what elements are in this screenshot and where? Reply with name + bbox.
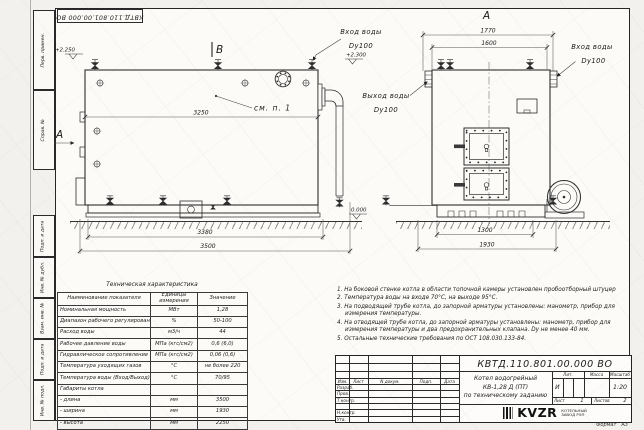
tb-sheet-label: Лист <box>554 398 572 403</box>
spec-col-header: Значение <box>198 292 248 305</box>
spec-row: Номинальная мощностьМВт1,28 <box>58 305 248 316</box>
tb-title-line: КВ-1,28 Д (ПТ) <box>461 385 550 392</box>
spec-name: Гидравлическое сопротивление котла <box>58 350 151 361</box>
spec-row: Рабочее давление водыМПа (кгс/см2)0,6 (6… <box>58 339 248 350</box>
spec-name: - высота <box>58 418 151 429</box>
tb-col-data: Дата <box>440 379 459 384</box>
spec-name: Габариты котла <box>58 384 151 395</box>
spec-value: 44 <box>198 328 248 339</box>
margin-stamp-label: Подп. и дата <box>42 344 47 375</box>
margin-stamp-label: Инв. № подл. <box>42 385 47 417</box>
tb-doc-number: КВТД.110.801.00.000 ВО <box>459 359 631 371</box>
tb-row-utv: Утв. <box>337 417 367 422</box>
margin-stamp-vzam-inv: Взам. инв. № <box>33 298 55 339</box>
margin-stamp-perv-primen: Перв. примен. <box>33 10 55 90</box>
note-item: 4. На отводящей трубе котла, до запорной… <box>337 320 629 335</box>
paper-edge-line <box>30 0 31 430</box>
corner-stamp: КВТД.110.801.00.000 ВО <box>57 9 143 23</box>
spec-table-title: Техническая характеристика <box>57 283 247 289</box>
spec-value: не более 220 <box>198 361 248 372</box>
tb-sheets-label: Листов <box>594 398 616 403</box>
tb-sheet-value: 1 <box>576 398 588 405</box>
tb-row-razrab: Разраб. <box>337 385 367 390</box>
titleblock-line <box>552 378 631 379</box>
spec-col-header: Единицы измерения <box>151 292 198 305</box>
spec-unit: МПа (кгс/см2) <box>151 350 198 361</box>
technical-notes: 1. На боковой стенке котла в области топ… <box>337 287 629 345</box>
spec-row: Гидравлическое сопротивление котлаМПа (к… <box>58 350 248 361</box>
tb-row-nkontr: Н.контр. <box>337 410 367 415</box>
ground-hatch-side <box>70 221 362 229</box>
format-value: А3 <box>621 423 628 428</box>
spec-col-header: Наименование показателя <box>58 292 151 305</box>
margin-stamp-label: Подп. и дата <box>42 220 47 251</box>
drawing-sheet: Перв. примен. Справ. № Подп. и дата Инв.… <box>0 0 644 430</box>
titleblock-line <box>563 378 564 397</box>
tb-col-list: Лист <box>349 379 368 384</box>
spec-table: Наименование показателя Единицы измерени… <box>57 292 248 430</box>
ground-hatch-front <box>396 221 610 229</box>
spec-unit: °С <box>151 361 198 372</box>
titleblock-line <box>412 356 413 422</box>
spec-value: 70/95 <box>198 373 248 384</box>
kvzr-logo-icon <box>503 407 513 419</box>
tb-row-tkontr: Т.контр. <box>337 398 367 403</box>
spec-value: 1930 <box>198 407 248 418</box>
tb-scale-value: 1:20 <box>609 384 631 392</box>
tb-mass-label: Масса <box>584 372 609 377</box>
tb-lit-label: Лит. <box>552 372 584 377</box>
tb-product-title: Котел водогрейный КВ-1,28 Д (ПТ) по техн… <box>461 373 550 403</box>
margin-stamp-podp-data-1: Подп. и дата <box>33 215 55 257</box>
margin-stamp-label: Справ. № <box>42 119 47 141</box>
spec-unit <box>151 384 198 395</box>
spec-name: Рабочее давление воды <box>58 339 151 350</box>
kvzr-company-line: ЗАВОД РЭП <box>561 413 587 418</box>
spec-row: Диапазон рабочего регулирования%50-100 <box>58 316 248 327</box>
spec-value: 0,6 (6,0) <box>198 339 248 350</box>
spec-unit: % <box>151 316 198 327</box>
note-item: 3. На подводящей трубе котла, до запорно… <box>337 304 629 319</box>
spec-row: Расход водым3/ч44 <box>58 328 248 339</box>
tb-scale-label: Масштаб <box>609 372 631 377</box>
title-block: Изм. Лист N докум. Подп. Дата Разраб. Пр… <box>335 355 632 423</box>
titleblock-line <box>573 378 574 397</box>
spec-name: Расход воды <box>58 328 151 339</box>
tb-row-prov: Пров. <box>337 391 367 396</box>
spec-row: - ширинамм1930 <box>58 407 248 418</box>
spec-unit: мм <box>151 395 198 406</box>
titleblock-line <box>336 371 459 372</box>
spec-unit: °С <box>151 373 198 384</box>
margin-stamp-inv-dubl: Инв. № дубл. <box>33 257 55 298</box>
format-label: Формат А3 <box>548 423 628 428</box>
spec-value: 0,06 (0,6) <box>198 350 248 361</box>
tb-lit-value: И <box>552 384 563 392</box>
format-word: Формат <box>596 423 616 428</box>
spec-unit: мм <box>151 418 198 429</box>
spec-row: Температура воды (Вход/Выход)°С70/95 <box>58 373 248 384</box>
margin-stamp-label: Инв. № дубл. <box>42 262 47 293</box>
spec-row: - длинамм3500 <box>58 395 248 406</box>
spec-value: 1,28 <box>198 305 248 316</box>
note-item: 2. Температура воды на входе 70°С, на вы… <box>337 295 629 303</box>
tb-col-izm: Изм. <box>336 379 349 384</box>
note-item: 1. На боковой стенке котла в области топ… <box>337 287 629 295</box>
titleblock-line <box>368 356 369 422</box>
tb-col-dokum: N докум. <box>368 379 412 384</box>
spec-unit: МВт <box>151 305 198 316</box>
margin-stamp-label: Взам. инв. № <box>42 303 47 334</box>
spec-unit: мм <box>151 407 198 418</box>
spec-unit: м3/ч <box>151 328 198 339</box>
titleblock-line <box>336 403 459 404</box>
titleblock-line <box>440 356 441 422</box>
titleblock-line <box>591 397 592 404</box>
tb-title-line: Котел водогрейный <box>461 376 550 383</box>
spec-value: 2250 <box>198 418 248 429</box>
spec-name: Температура воды (Вход/Выход) <box>58 373 151 384</box>
margin-stamp-inv-podl: Инв. № подл. <box>33 380 55 421</box>
tb-sheets-value: 2 <box>620 398 630 405</box>
tb-col-podp: Подп. <box>412 379 440 384</box>
margin-stamp-podp-data-2: Подп. и дата <box>33 339 55 380</box>
spec-value: 3500 <box>198 395 248 406</box>
spec-row: - высотамм2250 <box>58 418 248 429</box>
spec-row: Габариты котла <box>58 384 248 395</box>
corner-stamp-text: КВТД.110.801.00.000 ВО <box>56 13 144 19</box>
tb-title-line: по техническому заданию <box>461 393 550 400</box>
spec-value <box>198 384 248 395</box>
spec-value: 50-100 <box>198 316 248 327</box>
spec-unit: МПа (кгс/см2) <box>151 339 198 350</box>
margin-stamp-label: Перв. примен. <box>42 33 47 68</box>
spec-name: Номинальная мощность <box>58 305 151 316</box>
note-item: 5. Остальные технические требования по О… <box>337 336 629 344</box>
kvzr-logo-text: KVZR <box>517 407 557 420</box>
tb-logo-area: KVZR КОТЕЛЬНЫЙ ЗАВОД РЭП <box>459 405 631 422</box>
titleblock-line <box>336 363 459 364</box>
spec-name: Диапазон рабочего регулирования <box>58 316 151 327</box>
kvzr-company-name: КОТЕЛЬНЫЙ ЗАВОД РЭП <box>561 409 587 418</box>
margin-stamp-sprav-no: Справ. № <box>33 90 55 170</box>
spec-name: - ширина <box>58 407 151 418</box>
spec-name: Температура уходящих газов <box>58 361 151 372</box>
spec-name: - длина <box>58 395 151 406</box>
spec-row: Температура уходящих газов°Сне более 220 <box>58 361 248 372</box>
